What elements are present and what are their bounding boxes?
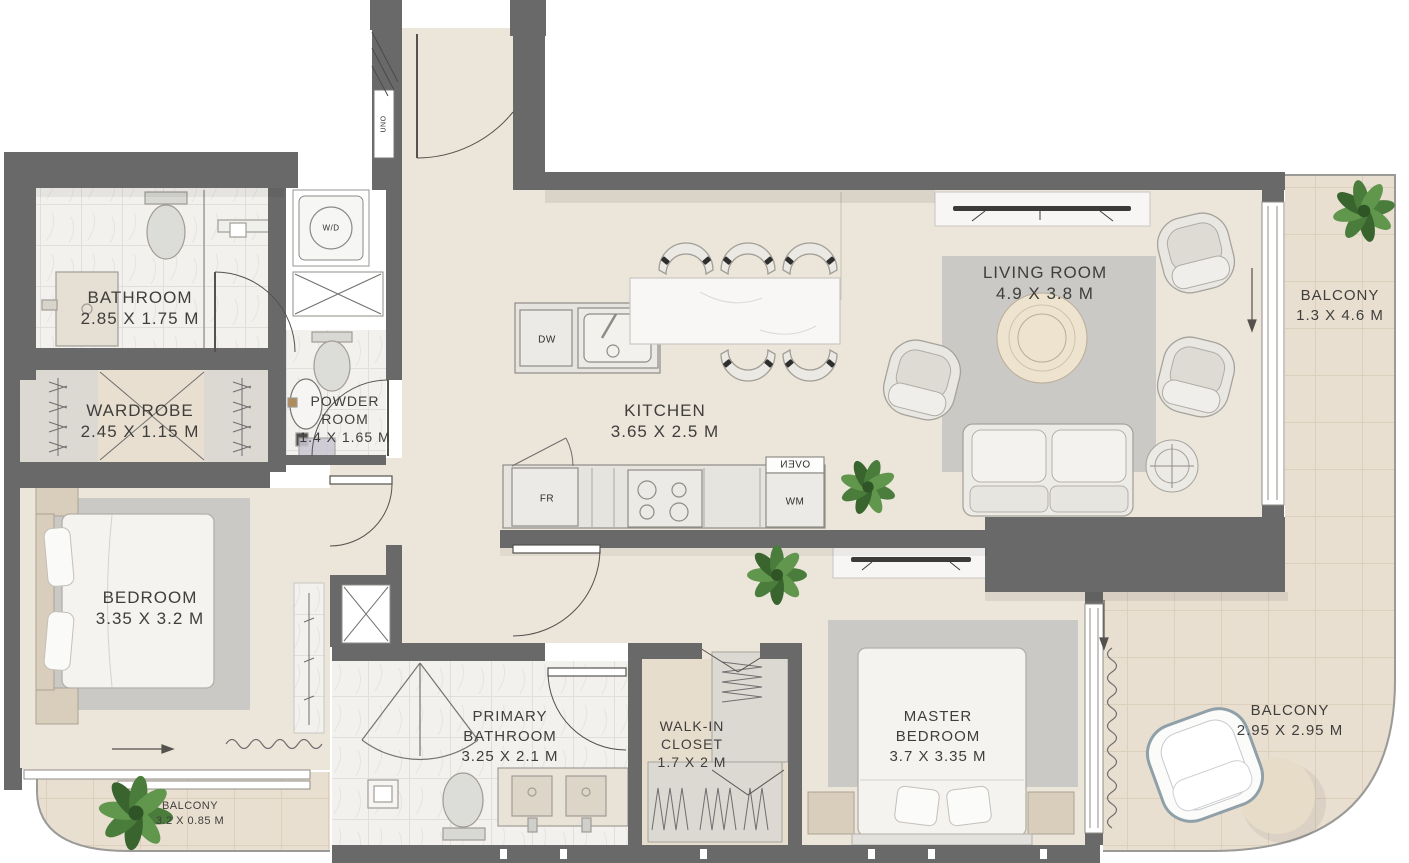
faucet: [288, 398, 297, 407]
tv: [953, 206, 1131, 211]
floor-plan-drawing: [0, 0, 1409, 863]
living-balcony-window: [1262, 202, 1284, 505]
hob: [628, 470, 702, 527]
side-table: [1146, 440, 1198, 492]
master-bed: [852, 648, 1032, 845]
master-tv: [851, 557, 971, 562]
toilet: [147, 205, 185, 259]
nightstand: [1028, 792, 1074, 834]
toilet: [314, 341, 350, 391]
oven: [766, 457, 824, 473]
utility-niche: [374, 90, 394, 158]
sofa: [963, 424, 1133, 516]
washing-machine: [766, 473, 824, 527]
bed: [36, 514, 214, 690]
coffee-table: [997, 293, 1087, 383]
fridge: [512, 468, 578, 526]
faucet: [42, 300, 57, 310]
washer-dryer-unit: [293, 190, 369, 266]
bedroom-window: [24, 770, 310, 779]
toilet: [443, 773, 483, 827]
nightstand: [808, 792, 854, 834]
dishwasher: [520, 310, 572, 366]
plant: [747, 545, 807, 605]
nightstand: [36, 688, 78, 724]
dining-table: [630, 278, 840, 344]
floor-plan: BATHROOM 2.85 X 1.75 M WARDROBE 2.45 X 1…: [0, 0, 1409, 863]
vanity: [56, 272, 118, 346]
